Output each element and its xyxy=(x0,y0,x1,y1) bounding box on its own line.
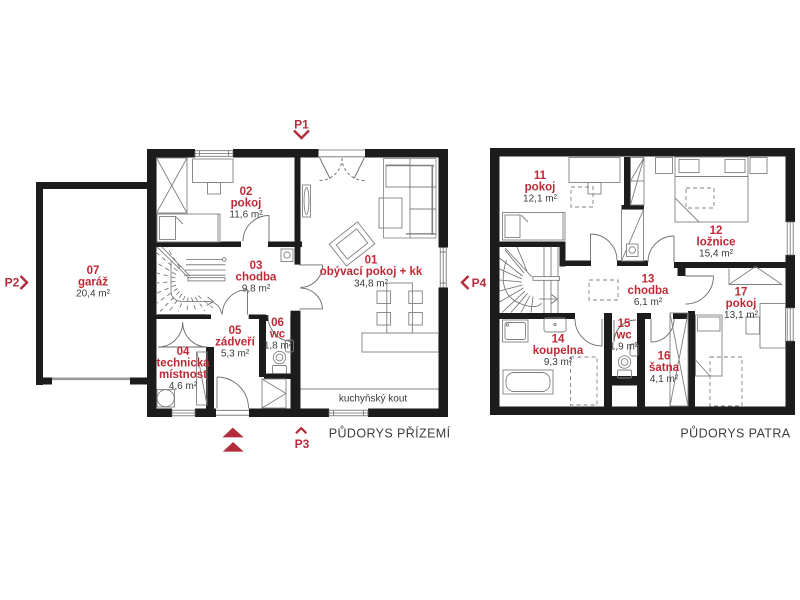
svg-text:14: 14 xyxy=(552,334,565,346)
svg-text:07: 07 xyxy=(87,265,100,277)
svg-text:15,4 m²: 15,4 m² xyxy=(699,249,734,260)
svg-text:4,6 m²: 4,6 m² xyxy=(169,381,198,392)
svg-text:pokoj: pokoj xyxy=(231,198,262,210)
svg-text:kuchyňský kout: kuchyňský kout xyxy=(339,394,408,405)
svg-text:5,3 m²: 5,3 m² xyxy=(221,349,250,360)
svg-text:místnost: místnost xyxy=(159,369,207,381)
svg-text:chodba: chodba xyxy=(236,272,277,284)
svg-text:6,1 m²: 6,1 m² xyxy=(634,297,663,308)
svg-text:01: 01 xyxy=(365,255,378,267)
svg-text:obývací pokoj + kk: obývací pokoj + kk xyxy=(320,266,423,278)
svg-text:11: 11 xyxy=(534,170,547,182)
svg-text:P3: P3 xyxy=(295,437,310,451)
svg-text:9,3 m²: 9,3 m² xyxy=(544,357,573,368)
svg-text:P1: P1 xyxy=(294,118,309,132)
svg-text:zádveří: zádveří xyxy=(215,337,255,349)
svg-text:12,1 m²: 12,1 m² xyxy=(523,194,558,205)
svg-text:11,6 m²: 11,6 m² xyxy=(229,210,263,221)
svg-text:pokoj: pokoj xyxy=(726,298,757,310)
svg-text:06: 06 xyxy=(271,317,284,329)
svg-text:34,8 m²: 34,8 m² xyxy=(354,279,389,290)
svg-text:wc: wc xyxy=(615,330,632,342)
svg-text:šatna: šatna xyxy=(649,362,680,374)
svg-text:17: 17 xyxy=(735,287,748,299)
svg-text:04: 04 xyxy=(177,346,190,358)
svg-text:technická: technická xyxy=(156,358,210,370)
svg-text:PŮDORYS PŘÍZEMÍ: PŮDORYS PŘÍZEMÍ xyxy=(329,426,451,441)
svg-text:9,8 m²: 9,8 m² xyxy=(242,284,271,295)
svg-text:1,8 m²: 1,8 m² xyxy=(264,341,293,352)
svg-text:16: 16 xyxy=(658,351,671,363)
svg-text:wc: wc xyxy=(269,329,286,341)
svg-text:03: 03 xyxy=(250,260,263,272)
svg-text:13,1 m²: 13,1 m² xyxy=(724,310,759,321)
svg-text:12: 12 xyxy=(710,225,723,237)
svg-text:koupelna: koupelna xyxy=(533,345,584,357)
svg-text:15: 15 xyxy=(618,318,631,330)
svg-text:P4: P4 xyxy=(472,276,487,290)
svg-text:20,4 m²: 20,4 m² xyxy=(76,289,111,300)
svg-text:chodba: chodba xyxy=(628,285,669,297)
svg-text:P2: P2 xyxy=(5,276,20,290)
svg-text:13: 13 xyxy=(642,274,655,286)
svg-text:PŮDORYS PATRA: PŮDORYS PATRA xyxy=(680,426,790,441)
svg-text:ložnice: ložnice xyxy=(697,237,736,249)
svg-text:05: 05 xyxy=(229,325,242,337)
svg-text:1,9 m²: 1,9 m² xyxy=(610,342,639,353)
svg-text:garáž: garáž xyxy=(78,277,108,289)
svg-text:4,1 m²: 4,1 m² xyxy=(650,374,679,385)
svg-text:02: 02 xyxy=(240,186,253,198)
svg-text:pokoj: pokoj xyxy=(525,182,556,194)
